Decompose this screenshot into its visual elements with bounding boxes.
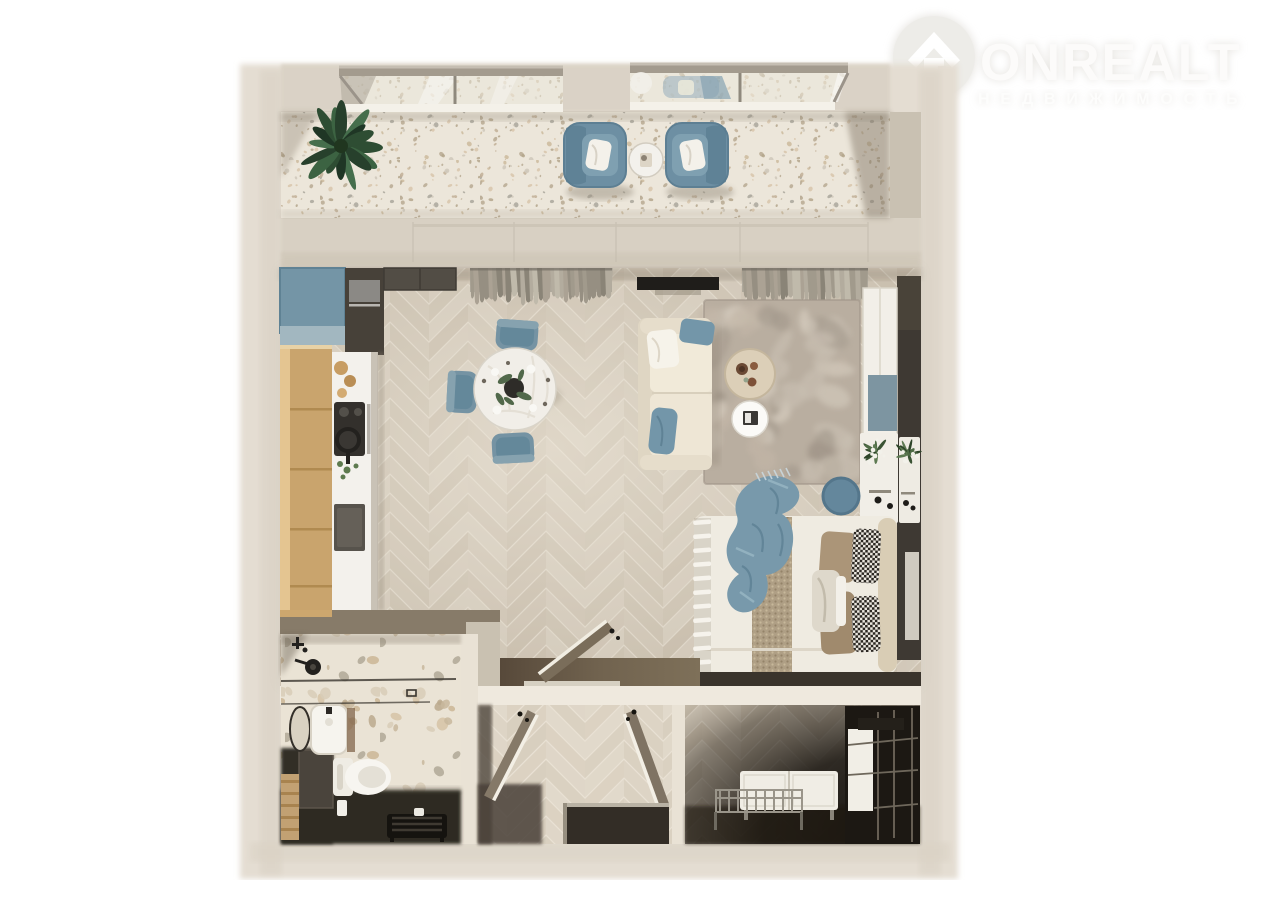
svg-text:ONREALT: ONREALT: [980, 34, 1241, 92]
svg-text:НЕДВИЖИМОСТЬ: НЕДВИЖИМОСТЬ: [978, 91, 1248, 108]
